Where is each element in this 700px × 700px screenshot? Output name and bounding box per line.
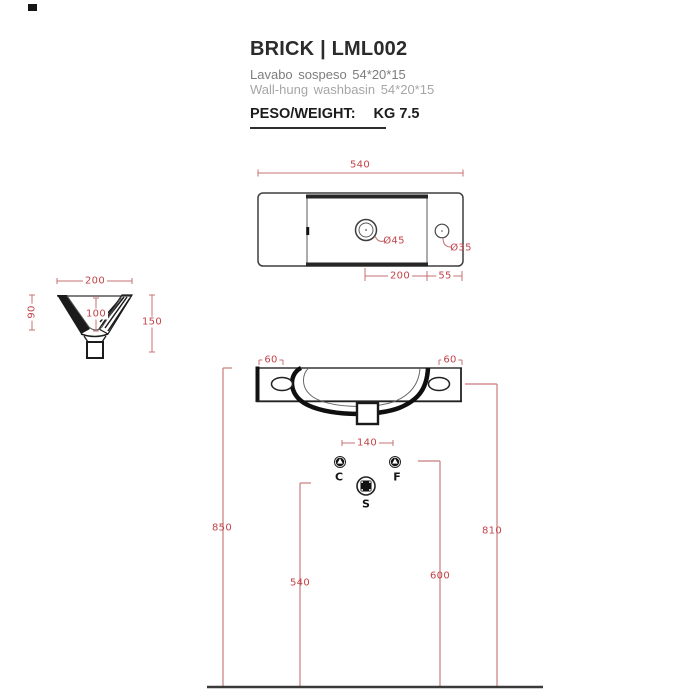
drain-label: S xyxy=(362,498,370,511)
dim-label-inner-depth-100: 100 xyxy=(84,309,108,320)
top-view-drawing xyxy=(258,193,463,266)
side-drain-stub xyxy=(87,342,103,358)
spec-sheet-page: BRICK | LML002 Lavabo sospeso 54*20*15 W… xyxy=(0,0,700,700)
dim-label-back-height-90: 90 xyxy=(27,303,38,320)
front-view-drawing xyxy=(256,367,462,425)
technical-drawing xyxy=(0,0,700,700)
dim-label-right-hole-60: 60 xyxy=(441,355,458,366)
dim-label-width-540: 540 xyxy=(350,160,370,171)
dim-label-edge-55: 55 xyxy=(436,271,453,282)
dim-label-drain-to-edge-200: 200 xyxy=(388,271,412,282)
dim-label-supply-height-600: 600 xyxy=(430,571,450,582)
install-symbols xyxy=(335,457,401,496)
cold-water-label: F xyxy=(393,471,401,484)
dim-label-depth-200: 200 xyxy=(83,276,107,287)
hot-water-label: C xyxy=(335,471,343,484)
dim-label-drain-height-540: 540 xyxy=(290,578,310,589)
overflow-mark xyxy=(306,227,309,235)
dim-label-basin-top-850: 850 xyxy=(212,523,232,534)
side-bowl-bottom xyxy=(81,334,108,337)
dim-label-left-hole-60: 60 xyxy=(262,355,279,366)
hot-water-symbol xyxy=(335,457,346,468)
left-fixing-hole xyxy=(272,378,293,391)
dim-label-fixing-height-810: 810 xyxy=(482,526,502,537)
dim-label-tap-diameter: Ø35 xyxy=(450,243,472,254)
cold-water-symbol xyxy=(390,457,401,468)
front-drain-stub xyxy=(357,403,378,424)
side-view-drawing xyxy=(57,295,132,358)
right-fixing-hole xyxy=(429,378,450,391)
drain-symbol xyxy=(357,477,375,495)
dim-label-tap-spacing-140: 140 xyxy=(355,438,379,449)
dim-label-height-150: 150 xyxy=(140,317,164,328)
dim-label-drain-diameter: Ø45 xyxy=(383,236,405,247)
